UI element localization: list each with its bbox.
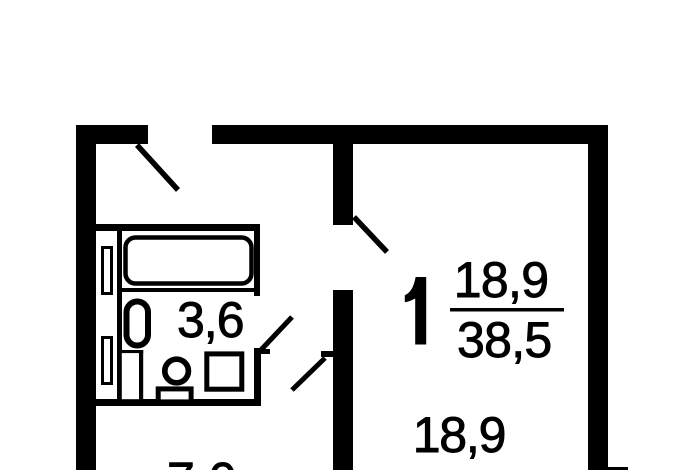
- svg-text:7,0: 7,0: [167, 453, 237, 470]
- svg-text:3,6: 3,6: [177, 292, 244, 348]
- svg-text:18,9: 18,9: [413, 407, 506, 463]
- svg-text:18,9: 18,9: [454, 252, 549, 308]
- svg-text:38,5: 38,5: [457, 312, 552, 368]
